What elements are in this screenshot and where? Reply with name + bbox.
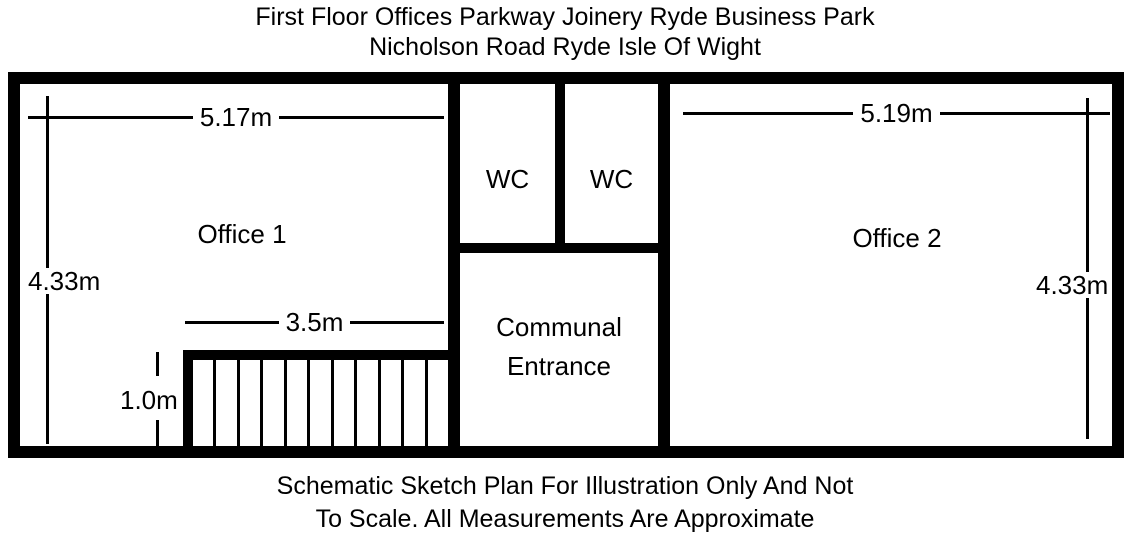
dimension-office1-height-label: 4.33m bbox=[26, 268, 102, 294]
stair-tread bbox=[334, 360, 357, 446]
stair-tread bbox=[310, 360, 333, 446]
plan-title-line2: Nicholson Road Ryde Isle Of Wight bbox=[0, 32, 1130, 62]
plan-footer-line2: To Scale. All Measurements Are Approxima… bbox=[0, 503, 1130, 536]
dimension-line bbox=[28, 116, 193, 119]
dimension-office1-width: 5.17m bbox=[28, 104, 444, 130]
communal-entrance-label: Communal Entrance bbox=[460, 308, 658, 386]
wall-stairs-left bbox=[183, 350, 193, 446]
wall-core-office2 bbox=[658, 84, 670, 446]
plan-footer-line1: Schematic Sketch Plan For Illustration O… bbox=[0, 470, 1130, 503]
dimension-line bbox=[279, 116, 444, 119]
dimension-line bbox=[350, 321, 444, 324]
dimension-line bbox=[940, 112, 1110, 115]
dimension-stairs-depth-label: 1.0m bbox=[118, 387, 180, 413]
wc-right-label: WC bbox=[565, 164, 658, 194]
dimension-stairs-depth-line-bottom bbox=[156, 420, 159, 446]
dimension-office2-width-label: 5.19m bbox=[853, 98, 939, 129]
stair-tread bbox=[381, 360, 404, 446]
stair-tread bbox=[240, 360, 263, 446]
stair-tread bbox=[216, 360, 239, 446]
stair-tread bbox=[357, 360, 380, 446]
floor-plan: 5.17m 4.33m 5.19m 4.33m 3.5m 1.0m Office… bbox=[8, 72, 1124, 458]
stair-tread bbox=[263, 360, 286, 446]
communal-entrance-label-line2: Entrance bbox=[460, 347, 658, 386]
wall-wc-bottom bbox=[448, 243, 670, 253]
dimension-stairs-depth-line-top bbox=[156, 352, 159, 376]
wc-left-label: WC bbox=[460, 164, 555, 194]
wall-stairs-top bbox=[183, 350, 460, 360]
floor-plan-page: First Floor Offices Parkway Joinery Ryde… bbox=[0, 0, 1130, 545]
wall-office1-core bbox=[448, 84, 460, 446]
stair-tread bbox=[404, 360, 427, 446]
stair-tread bbox=[193, 360, 216, 446]
dimension-line bbox=[683, 112, 853, 115]
dimension-office1-width-label: 5.17m bbox=[193, 102, 279, 133]
plan-title: First Floor Offices Parkway Joinery Ryde… bbox=[0, 2, 1130, 62]
stair-tread bbox=[287, 360, 310, 446]
dimension-stairs-width-label: 3.5m bbox=[279, 307, 351, 338]
dimension-office2-height-label: 4.33m bbox=[1034, 272, 1110, 298]
stairs bbox=[193, 360, 448, 446]
dimension-line bbox=[185, 321, 279, 324]
dimension-office2-height-line bbox=[1086, 98, 1089, 439]
office1-label: Office 1 bbox=[142, 219, 342, 249]
stair-tread bbox=[428, 360, 448, 446]
dimension-stairs-width: 3.5m bbox=[185, 309, 444, 335]
plan-footer: Schematic Sketch Plan For Illustration O… bbox=[0, 470, 1130, 536]
plan-title-line1: First Floor Offices Parkway Joinery Ryde… bbox=[0, 2, 1130, 32]
communal-entrance-label-line1: Communal bbox=[460, 308, 658, 347]
dimension-office2-width: 5.19m bbox=[683, 100, 1110, 126]
wall-wc-divider bbox=[555, 84, 565, 253]
office2-label: Office 2 bbox=[797, 223, 997, 253]
